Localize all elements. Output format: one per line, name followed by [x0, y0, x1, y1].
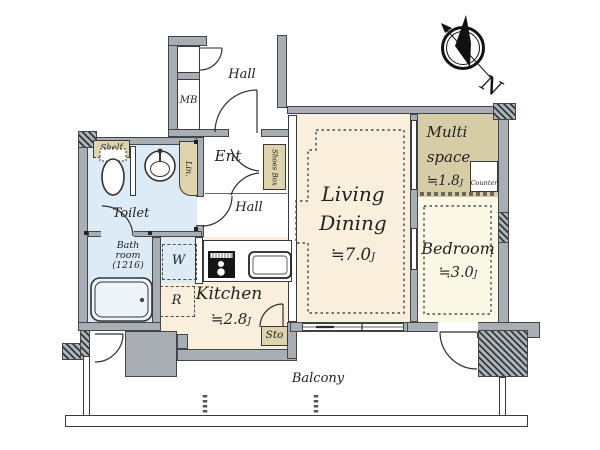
unit-top-wall — [287, 106, 500, 114]
shelf-label: Shelf — [93, 144, 130, 153]
balcony-label: Balcony — [288, 372, 348, 386]
bedroom-size-unit: J — [474, 270, 478, 280]
corner-hatch-top-right — [493, 103, 516, 120]
wall-dot-3 — [194, 140, 198, 144]
bedroom-bottom-wall-left — [407, 322, 440, 332]
kitchen-counter-band — [203, 240, 292, 282]
multi-space-size-label: ≒1.8J — [419, 174, 471, 188]
corridor-hall-label: Hall — [213, 68, 271, 82]
compass-north-label: N — [475, 70, 506, 102]
entrance-top-wall-left — [168, 129, 229, 137]
kitchen-size-unit: J — [247, 316, 251, 327]
bedroom-sliding-door — [411, 228, 417, 270]
compass-icon: N — [441, 15, 506, 103]
bedroom-balcony-door-arc — [440, 332, 477, 369]
entrance-label: Ent — [203, 149, 253, 165]
bedroom-floor — [418, 197, 498, 322]
inner-hall-label: Hall — [220, 201, 278, 215]
washer-label: W — [162, 254, 195, 268]
toilet-partition — [130, 146, 136, 196]
kitchen-size-label: ≒2.8J — [200, 312, 262, 328]
counter-label: Counter — [470, 180, 498, 187]
bedroom-size-label: ≒3.0J — [420, 266, 496, 281]
kitchen-bottom-wall — [177, 349, 297, 361]
multi-space-size-value: ≒1.8 — [427, 173, 460, 189]
shoes-box-label: Shoes Box — [271, 149, 279, 186]
entrance-door-gap — [229, 129, 261, 137]
storage-label: Sto — [261, 330, 288, 341]
toilet-label: Toilet — [102, 207, 160, 221]
linen-label: Lin. — [184, 161, 193, 177]
balcony-partition-dotted-lines — [205, 395, 316, 415]
wall-dot-2 — [148, 231, 152, 235]
fridge-label: R — [160, 294, 193, 308]
entrance-step-line — [205, 193, 287, 195]
balcony-service-door-arc — [95, 334, 123, 362]
pipe-shaft-box — [177, 46, 200, 73]
living-size-label: ≒7.0J — [300, 246, 406, 264]
multi-space-sliding-door — [411, 120, 417, 190]
balcony-left-hatch-horizontal — [62, 343, 81, 360]
living-label-line1: Living — [300, 184, 406, 205]
pipe-space-block-ext — [177, 334, 188, 349]
living-balcony-window — [302, 323, 404, 331]
floor-plan: Lin. Shoes Box Hall MB Ent Hall Toilet S… — [0, 0, 600, 450]
bathroom-bottom-wall — [78, 322, 161, 331]
bathroom-label-line3: (1216) — [100, 261, 156, 271]
shoes-box: Shoes Box — [263, 144, 286, 190]
corridor-entrance-door-arc — [215, 90, 257, 133]
living-size-unit: J — [371, 252, 375, 263]
wall-dot-1 — [84, 231, 88, 235]
kitchen-label: Kitchen — [193, 286, 265, 304]
linen-closet: Lin. — [179, 141, 198, 196]
entrance-top-wall-right — [261, 129, 290, 137]
balcony-post-right — [499, 377, 506, 417]
balcony-divider-left — [83, 356, 90, 417]
ps-door-arc — [200, 48, 222, 70]
corridor-right-wall — [277, 35, 287, 108]
corridor-top-wall — [168, 36, 207, 46]
pipe-space-block — [125, 331, 177, 377]
right-wall-window-hatch — [498, 212, 509, 243]
bottom-right-hatch-block — [478, 330, 528, 377]
bathroom-label: Bath room (1216) — [100, 241, 156, 271]
multi-space-label-line2: space — [421, 150, 476, 166]
balcony-floor — [65, 415, 528, 427]
bathroom-door-gap — [101, 231, 134, 237]
living-size-value: ≒7.0 — [331, 245, 371, 264]
bedroom-size-value: ≒3.0 — [439, 265, 474, 281]
living-label-line2: Dining — [300, 213, 406, 234]
bedroom-label: Bedroom — [420, 241, 496, 258]
hall-living-sliding-door — [288, 115, 297, 322]
multi-space-size-unit: J — [460, 177, 463, 187]
wall-dot-4 — [194, 227, 198, 231]
multi-space-label-line1: Multi — [421, 125, 473, 141]
meter-box-label: MB — [177, 96, 200, 107]
bedroom-balcony-door-gap — [438, 322, 478, 332]
kitchen-size-value: ≒2.8 — [211, 310, 247, 328]
